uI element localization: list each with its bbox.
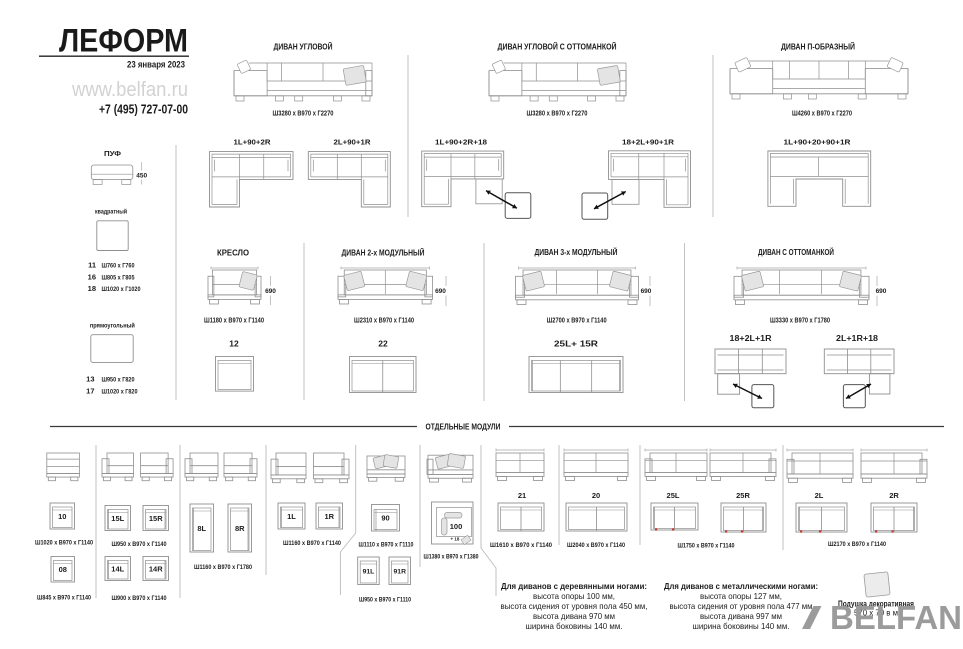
svg-text:1L: 1L <box>287 512 296 521</box>
svg-text:25L: 25L <box>667 491 680 500</box>
svg-text:13: 13 <box>86 375 94 384</box>
svg-text:Ш1180 х В970 х Г1140: Ш1180 х В970 х Г1140 <box>204 318 264 325</box>
svg-text:690: 690 <box>876 288 887 295</box>
svg-text:21: 21 <box>518 491 526 500</box>
svg-text:Ш950 х В970 х Г1110: Ш950 х В970 х Г1110 <box>359 597 411 604</box>
svg-text:Ш3330 х В970 х Г1780: Ш3330 х В970 х Г1780 <box>770 318 830 325</box>
svg-text:Ш3280 х В970 х Г2270: Ш3280 х В970 х Г2270 <box>273 109 334 118</box>
svg-text:Ш1110 х В970 х Г1110: Ш1110 х В970 х Г1110 <box>359 542 414 549</box>
svg-text:Ш2040 х В970 х Г1140: Ш2040 х В970 х Г1140 <box>567 542 625 549</box>
svg-text:25R: 25R <box>736 491 750 500</box>
svg-text:18: 18 <box>88 284 96 293</box>
svg-text:10: 10 <box>58 512 66 521</box>
svg-text:22: 22 <box>378 339 388 349</box>
svg-text:прямоугольный: прямоугольный <box>90 322 135 330</box>
svg-text:2R: 2R <box>889 491 899 500</box>
svg-text:18+2L+90+1R: 18+2L+90+1R <box>622 138 675 147</box>
svg-text:BELFAN: BELFAN <box>830 599 962 636</box>
svg-text:15L: 15L <box>111 514 124 523</box>
svg-text:ДИВАН 3-х МОДУЛЬНЫЙ: ДИВАН 3-х МОДУЛЬНЫЙ <box>535 248 618 257</box>
svg-text:высота дивана 970 мм: высота дивана 970 мм <box>533 611 615 621</box>
svg-text:Ш3280 х В970 х Г2270: Ш3280 х В970 х Г2270 <box>527 109 588 118</box>
svg-text:ДИВАН 2-х МОДУЛЬНЫЙ: ДИВАН 2-х МОДУЛЬНЫЙ <box>342 249 425 258</box>
svg-text:16: 16 <box>88 273 96 282</box>
svg-text:08: 08 <box>59 565 67 574</box>
svg-text:Ш760 х Г760: Ш760 х Г760 <box>102 263 135 270</box>
svg-text:1R: 1R <box>324 512 334 521</box>
svg-text:ДИВАН С ОТТОМАНКОЙ: ДИВАН С ОТТОМАНКОЙ <box>758 248 834 257</box>
svg-text:690: 690 <box>435 288 446 295</box>
svg-text:Ш1160 х В970 х Г1140: Ш1160 х В970 х Г1140 <box>283 540 341 547</box>
svg-text:690: 690 <box>265 288 276 295</box>
svg-text:2L+1R+18: 2L+1R+18 <box>836 334 879 343</box>
svg-text:Для диванов с металлическими н: Для диванов с металлическими ногами: <box>664 581 818 591</box>
svg-text:17: 17 <box>86 387 94 396</box>
svg-text:15R: 15R <box>149 514 163 523</box>
svg-text:8R: 8R <box>235 524 245 533</box>
svg-text:100: 100 <box>450 522 463 531</box>
svg-text:ДИВАН П-ОБРАЗНЫЙ: ДИВАН П-ОБРАЗНЫЙ <box>781 43 855 52</box>
svg-text:18+2L+1R: 18+2L+1R <box>730 334 772 343</box>
svg-text:14L: 14L <box>111 564 124 573</box>
svg-text:ДИВАН УГЛОВОЙ: ДИВАН УГЛОВОЙ <box>274 43 333 52</box>
svg-text:высота сидения от уровня пола: высота сидения от уровня пола 477 мм <box>670 601 813 611</box>
svg-text:квадратный: квадратный <box>95 208 127 216</box>
svg-text:высота дивана 997 мм: высота дивана 997 мм <box>700 611 782 621</box>
svg-text:2L+90+1R: 2L+90+1R <box>334 138 372 147</box>
svg-text:высота сидения от уровня пола: высота сидения от уровня пола 450 мм, <box>501 601 648 611</box>
svg-text:1L+90+2R+18: 1L+90+2R+18 <box>435 138 487 147</box>
svg-text:Ш2170 х В970 х Г1140: Ш2170 х В970 х Г1140 <box>828 541 886 548</box>
svg-text:ПУФ: ПУФ <box>104 149 122 158</box>
svg-text:90: 90 <box>381 514 389 523</box>
svg-text:Ш950 х Г820: Ш950 х Г820 <box>102 377 135 384</box>
svg-text:2L: 2L <box>815 491 824 500</box>
svg-text:8L: 8L <box>197 524 206 533</box>
svg-text:1L+90+2R: 1L+90+2R <box>234 138 272 147</box>
svg-text:12: 12 <box>229 339 239 349</box>
svg-text:25L+ 15R: 25L+ 15R <box>554 339 598 349</box>
svg-text:1L+90+20+90+1R: 1L+90+20+90+1R <box>784 138 852 147</box>
svg-text:высота опоры 100 мм,: высота опоры 100 мм, <box>533 591 615 601</box>
svg-text:Ш1020 х Г820: Ш1020 х Г820 <box>102 389 138 396</box>
svg-text:Ш805 х Г805: Ш805 х Г805 <box>102 275 135 282</box>
svg-text:450: 450 <box>136 172 147 179</box>
svg-text:Ш1380 х В970 х Г1380: Ш1380 х В970 х Г1380 <box>424 554 479 561</box>
svg-text:Ш2310 х В970 х Г1140: Ш2310 х В970 х Г1140 <box>354 318 414 325</box>
svg-text:Ш1020 х Г1020: Ш1020 х Г1020 <box>102 286 141 293</box>
svg-text:91R: 91R <box>394 568 407 575</box>
svg-text:Ш1750 х В970 х Г1140: Ш1750 х В970 х Г1140 <box>678 543 735 550</box>
svg-text:ширина боковины 140 мм.: ширина боковины 140 мм. <box>693 621 790 631</box>
svg-text:ЛЕФОРМ: ЛЕФОРМ <box>59 23 188 59</box>
svg-text:Ш1020 х В970 х Г1140: Ш1020 х В970 х Г1140 <box>35 540 93 547</box>
svg-text:Ш900 х В970 х Г1140: Ш900 х В970 х Г1140 <box>112 595 167 602</box>
svg-text:ширина боковины 140 мм.: ширина боковины 140 мм. <box>526 621 623 631</box>
svg-text:Ш4260 х В970 х Г2270: Ш4260 х В970 х Г2270 <box>792 109 852 118</box>
svg-text:20: 20 <box>592 491 600 500</box>
svg-text:Ш950 х В970 х Г1140: Ш950 х В970 х Г1140 <box>112 541 167 548</box>
svg-text:ОТДЕЛЬНЫЕ МОДУЛИ: ОТДЕЛЬНЫЕ МОДУЛИ <box>426 423 501 432</box>
svg-text:высота опоры 127 мм,: высота опоры 127 мм, <box>700 591 782 601</box>
svg-text:690: 690 <box>641 288 652 295</box>
svg-text:+ 18: + 18 <box>451 537 460 542</box>
svg-text:23 января 2023: 23 января 2023 <box>127 60 185 71</box>
svg-text:www.belfan.ru: www.belfan.ru <box>71 79 188 101</box>
svg-text:+7 (495) 727-07-00: +7 (495) 727-07-00 <box>99 103 188 117</box>
svg-text:91L: 91L <box>363 568 375 575</box>
svg-text:ДИВАН УГЛОВОЙ С ОТТОМАНКОЙ: ДИВАН УГЛОВОЙ С ОТТОМАНКОЙ <box>498 43 617 52</box>
svg-text:Ш845 х В970 х Г1140: Ш845 х В970 х Г1140 <box>37 595 91 602</box>
svg-text:11: 11 <box>88 261 96 270</box>
svg-text:Ш1610 х В970 х Г1140: Ш1610 х В970 х Г1140 <box>490 542 552 549</box>
svg-text:Ш1160 х В970 х Г1780: Ш1160 х В970 х Г1780 <box>194 564 252 571</box>
svg-text:Для диванов с деревянными нога: Для диванов с деревянными ногами: <box>501 581 647 591</box>
svg-text:КРЕСЛО: КРЕСЛО <box>217 249 249 258</box>
svg-text:Ш2700 х В970 х Г1140: Ш2700 х В970 х Г1140 <box>547 318 607 325</box>
svg-text:14R: 14R <box>149 564 163 573</box>
